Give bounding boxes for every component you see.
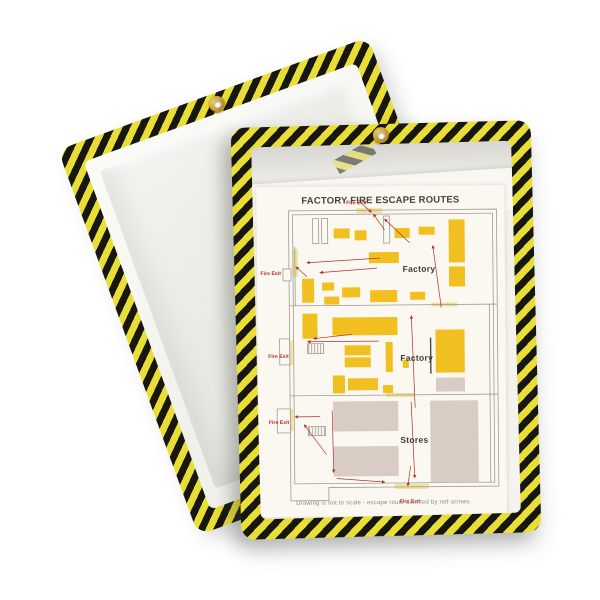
machine-block <box>369 252 399 263</box>
machine-block <box>345 345 371 355</box>
area-label: Stores <box>400 435 428 445</box>
exit-bumpout <box>283 269 291 281</box>
stairs-symbol <box>308 427 325 436</box>
plan-wall <box>295 247 296 306</box>
plan-wall <box>289 304 497 306</box>
back-holder-edge-through-plastic <box>332 141 376 174</box>
fire-exit-label: Fire Exit <box>268 354 289 360</box>
machine-block <box>449 219 465 262</box>
route-arrow <box>308 341 379 342</box>
exit-bumpout <box>280 339 290 365</box>
machine-block <box>419 227 435 235</box>
machine-block <box>410 292 425 300</box>
plan-slot <box>322 219 328 244</box>
machine-block <box>333 375 345 393</box>
route-arrow <box>373 214 384 230</box>
machine-block <box>348 378 378 390</box>
machine-block <box>449 266 465 286</box>
machine-block <box>324 296 339 304</box>
fire-exit-gap <box>293 249 298 277</box>
storage-block <box>333 401 398 432</box>
machine-block <box>334 228 350 238</box>
escape-route-sheet: FACTORY FIRE ESCAPE ROUTES FactoryFactor… <box>256 185 507 517</box>
storage-block <box>430 400 479 482</box>
machine-block <box>345 357 371 367</box>
storage-block <box>334 446 399 477</box>
machine-block <box>302 314 317 339</box>
plan-group: FactoryFactoryStoresFire ExitFire ExitFi… <box>260 199 499 506</box>
product-photo: FACTORY FIRE ESCAPE ROUTES FactoryFactor… <box>0 0 600 600</box>
area-label: Factory <box>400 353 433 363</box>
stairs-symbol <box>308 344 324 354</box>
plan-wall <box>489 304 491 482</box>
route-arrow <box>337 478 385 482</box>
plan-slot <box>313 219 319 244</box>
machine-block <box>332 317 397 336</box>
storage-block <box>436 377 465 391</box>
machine-block <box>386 342 393 372</box>
front-ticket-holder: FACTORY FIRE ESCAPE ROUTES FactoryFactor… <box>231 120 542 540</box>
route-arrow <box>320 268 377 272</box>
machine-block <box>302 279 314 303</box>
fire-exit-label: Fire Exit <box>346 200 367 206</box>
floor-plan: FactoryFactoryStoresFire ExitFire ExitFi… <box>256 185 507 517</box>
machine-block <box>435 329 464 372</box>
machine-block <box>322 283 334 291</box>
route-arrow <box>433 246 442 308</box>
machine-block <box>370 290 397 302</box>
area-label: Factory <box>403 264 436 274</box>
fire-exit-label: Fire Exit <box>269 420 290 426</box>
machine-block <box>355 230 367 240</box>
machine-block <box>342 287 360 297</box>
fire-exit-label: Fire Exit <box>260 271 281 277</box>
machine-block <box>383 385 393 393</box>
machine-block <box>395 228 410 238</box>
front-holder-window: FACTORY FIRE ESCAPE ROUTES FactoryFactor… <box>251 141 521 520</box>
